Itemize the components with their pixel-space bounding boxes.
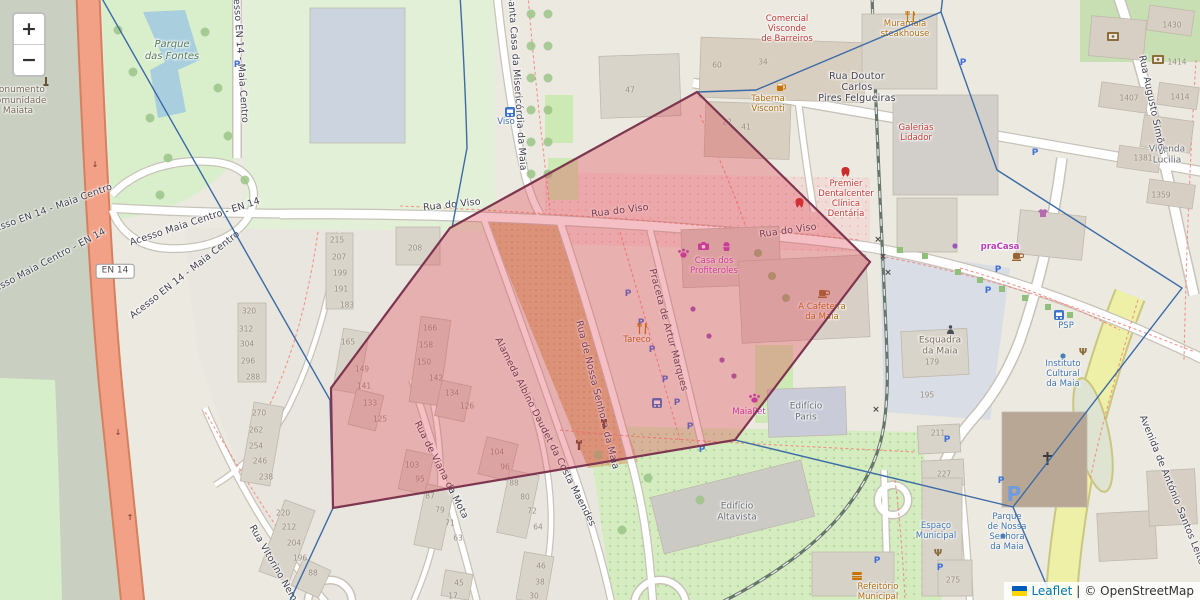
house-number: 63 (453, 534, 463, 543)
attribution-bar: Leaflet | © OpenStreetMap (1004, 582, 1200, 600)
house-number: 275 (946, 576, 960, 585)
house-number: 296 (241, 357, 255, 366)
house-number: 179 (925, 358, 939, 367)
house-number: 80 (520, 493, 530, 502)
parking-icon: P (1032, 142, 1039, 158)
map-label: Parque das Fontes (145, 39, 199, 63)
house-number: 165 (341, 338, 355, 347)
house-number: 196 (293, 554, 307, 563)
parking-icon: P (874, 550, 881, 566)
zoom-out-button[interactable]: − (14, 45, 44, 75)
leaflet-map[interactable]: Rua do VisoRua do VisoRua do VisoRua Dou… (0, 0, 1200, 600)
map-label: Acesso Maia Centro - EN 14 (0, 226, 108, 300)
parking-icon: P (234, 54, 241, 70)
map-label: Avenida de António Santos Leite (1137, 414, 1200, 567)
map-label: Rua Santa Casa da Misericórdia da Maia (504, 0, 529, 171)
ukraine-flag-icon (1012, 586, 1027, 596)
house-number: 238 (259, 473, 273, 482)
map-label: Viso (497, 117, 515, 127)
map-label: Premier Dentalcenter Clínica Dentária (818, 179, 873, 219)
parking-icon: P (995, 259, 1002, 275)
house-number: 38 (535, 578, 545, 587)
crossing-icon: × (872, 399, 880, 415)
zoom-in-button[interactable]: + (14, 14, 44, 45)
house-number: 220 (276, 509, 290, 518)
house-number: 88 (509, 479, 519, 488)
house-number: 304 (240, 340, 254, 349)
house-number: 195 (920, 391, 934, 400)
house-number: 45 (454, 579, 464, 588)
parking-icon: P (937, 557, 944, 573)
map-label: Rua Vitorino Nemésio (247, 523, 310, 600)
house-number: 211 (931, 429, 945, 438)
map-label: Rua do Viso (423, 196, 482, 213)
house-number: 79 (435, 506, 445, 515)
house-number: 254 (249, 442, 263, 451)
house-number: 1414 (1170, 93, 1189, 102)
map-label: Taberna Visconti (751, 94, 785, 114)
house-number: 1359 (1151, 191, 1170, 200)
house-number: 288 (246, 373, 260, 382)
house-number: 46 (536, 562, 546, 571)
house-number: 312 (239, 325, 253, 334)
map-label: Comercial Visconde de Barreiros (761, 14, 813, 44)
map-label: Esquadra da Maia (919, 335, 961, 356)
fountain-icon: Ψ (1079, 342, 1088, 358)
arrow-up-icon: ↑ (127, 507, 134, 523)
map-label: Parque de Nossa Senhora da Maia (988, 512, 1027, 552)
house-number: 212 (282, 523, 296, 532)
house-number: 88 (308, 569, 318, 578)
map-label: Vivenda Lucilia (1149, 144, 1185, 165)
parking-icon: P (985, 280, 992, 296)
house-number: 47 (625, 86, 635, 95)
crossing-icon: × (874, 229, 882, 245)
map-label: Galerias Lidador (899, 123, 934, 143)
house-number: 71 (445, 519, 455, 528)
map-label: PSP (1058, 321, 1074, 331)
house-number: 246 (253, 457, 267, 466)
map-label: Refeitório Municipal (858, 582, 899, 600)
crossing-icon: × (884, 262, 892, 278)
map-label: Instituto Cultural da Maia (1045, 359, 1080, 389)
map-label: Edifício Paris (790, 401, 823, 422)
house-number: 191 (334, 285, 348, 294)
map-label: Espaço Municipal (916, 521, 956, 541)
map-label: Monumento Comunidade Maiata (0, 85, 46, 117)
map-label: Edifício Altavista (717, 501, 756, 522)
house-number: 1414 (1167, 58, 1186, 67)
house-number: 72 (527, 507, 537, 516)
map-label: Rua Doutor Carlos Pires Felgueiras (818, 71, 896, 105)
house-number: 41 (741, 123, 751, 132)
house-number: 227 (937, 470, 951, 479)
osm-link[interactable]: © OpenStreetMap (1084, 584, 1194, 598)
house-number: 17 (448, 592, 458, 600)
house-number: 183 (340, 301, 354, 310)
house-number: 207 (332, 253, 346, 262)
fountain-icon: Ψ (934, 543, 943, 559)
house-number: 208 (408, 244, 422, 253)
arrow-down-icon: ↓ (92, 154, 99, 170)
house-number: 320 (242, 307, 256, 316)
leaflet-link[interactable]: Leaflet (1031, 584, 1072, 598)
house-number: 204 (287, 539, 301, 548)
house-number: 1430 (1162, 21, 1181, 30)
parking-icon: P (960, 52, 967, 68)
house-number: 262 (249, 426, 263, 435)
house-number: 60 (712, 61, 722, 70)
map-label: Acesso EN 14 - Maia Centro (0, 181, 114, 238)
arrow-down-icon: ↓ (115, 422, 122, 438)
map-label: Acesso EN 14 - Maia Centro (128, 229, 242, 322)
parking-icon: P (944, 429, 951, 445)
house-number: 34 (758, 58, 768, 67)
parking-big-icon: P (1007, 484, 1022, 504)
map-label: praCasa (981, 242, 1020, 252)
crossing-icon: × (879, 246, 887, 262)
map-label: Rua Augusto Simões (1136, 54, 1168, 155)
map-label: Acesso EN 14 - Maia Centro (230, 0, 251, 123)
house-number: 30 (529, 592, 539, 600)
house-number: 215 (330, 236, 344, 245)
attribution-separator: | (1076, 584, 1080, 598)
parking-icon: P (998, 470, 1005, 486)
house-number: 64 (533, 523, 543, 532)
house-number: 270 (252, 409, 266, 418)
map-label: Acesso Maia Centro - EN 14 (128, 196, 261, 249)
house-number: 1381 (1133, 154, 1152, 163)
map-label: Muramaia steakhouse (881, 19, 930, 39)
zoom-control[interactable]: + − (12, 12, 46, 77)
road-shield: EN 14 (96, 264, 135, 279)
house-number: 1407 (1119, 94, 1138, 103)
house-number: 199 (333, 269, 347, 278)
